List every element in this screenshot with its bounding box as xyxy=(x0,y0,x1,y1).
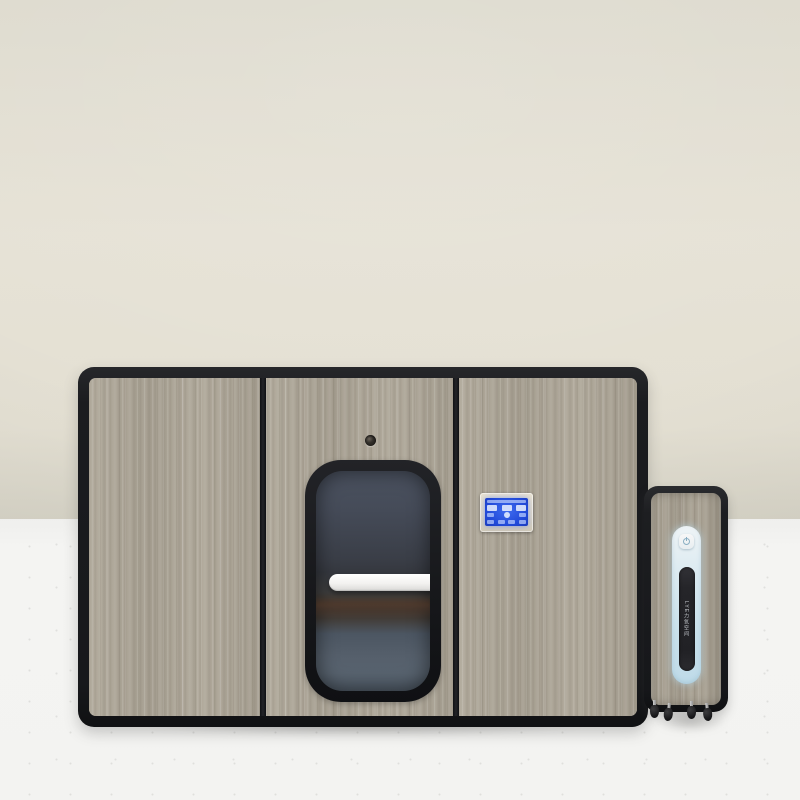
power-button xyxy=(679,534,694,549)
product-photo-scene: LYE力氧空间 xyxy=(0,0,800,800)
screen-mini-button xyxy=(487,520,494,524)
screen-mini-button xyxy=(508,520,515,524)
caster-wheel xyxy=(702,703,713,722)
control-touchscreen xyxy=(485,498,528,526)
caster-wheel xyxy=(663,703,674,722)
control-panel-bezel xyxy=(480,493,533,532)
wood-panel-right xyxy=(459,378,637,716)
cabin-face xyxy=(89,378,637,716)
wood-panel-left xyxy=(89,378,260,716)
screen-dial-row xyxy=(487,512,526,518)
screen-readout-row xyxy=(487,505,526,511)
screen-readout-box xyxy=(502,505,512,511)
brand-strip: LYE力氧空间 xyxy=(679,567,695,671)
panel-divider-left xyxy=(260,378,266,716)
screen-mini-button xyxy=(498,520,505,524)
screen-readout-box xyxy=(516,505,526,511)
side-unit-frame: LYE力氧空间 xyxy=(644,486,728,712)
screen-center-dial xyxy=(504,512,510,518)
screen-mini-button xyxy=(519,513,526,517)
glass-reflection-horizon xyxy=(316,596,430,616)
door-handle xyxy=(329,574,430,591)
brand-label: LYE力氧空间 xyxy=(683,601,690,637)
screen-mini-button xyxy=(487,513,494,517)
cabin-frame xyxy=(78,367,648,727)
screen-mini-button xyxy=(519,520,526,524)
power-icon xyxy=(683,538,690,545)
panel-divider-right xyxy=(453,378,459,716)
screen-readout-box xyxy=(487,505,497,511)
screen-button-row xyxy=(487,520,526,524)
door-window-frame xyxy=(305,460,441,702)
caster-wheel xyxy=(687,701,696,719)
caster-wheel xyxy=(650,700,659,718)
peephole-camera xyxy=(365,435,376,446)
side-unit-panel: LYE力氧空间 xyxy=(651,493,721,705)
door-window-glass xyxy=(316,471,430,691)
screen-status-bar xyxy=(487,500,526,503)
control-capsule: LYE力氧空间 xyxy=(672,526,701,684)
